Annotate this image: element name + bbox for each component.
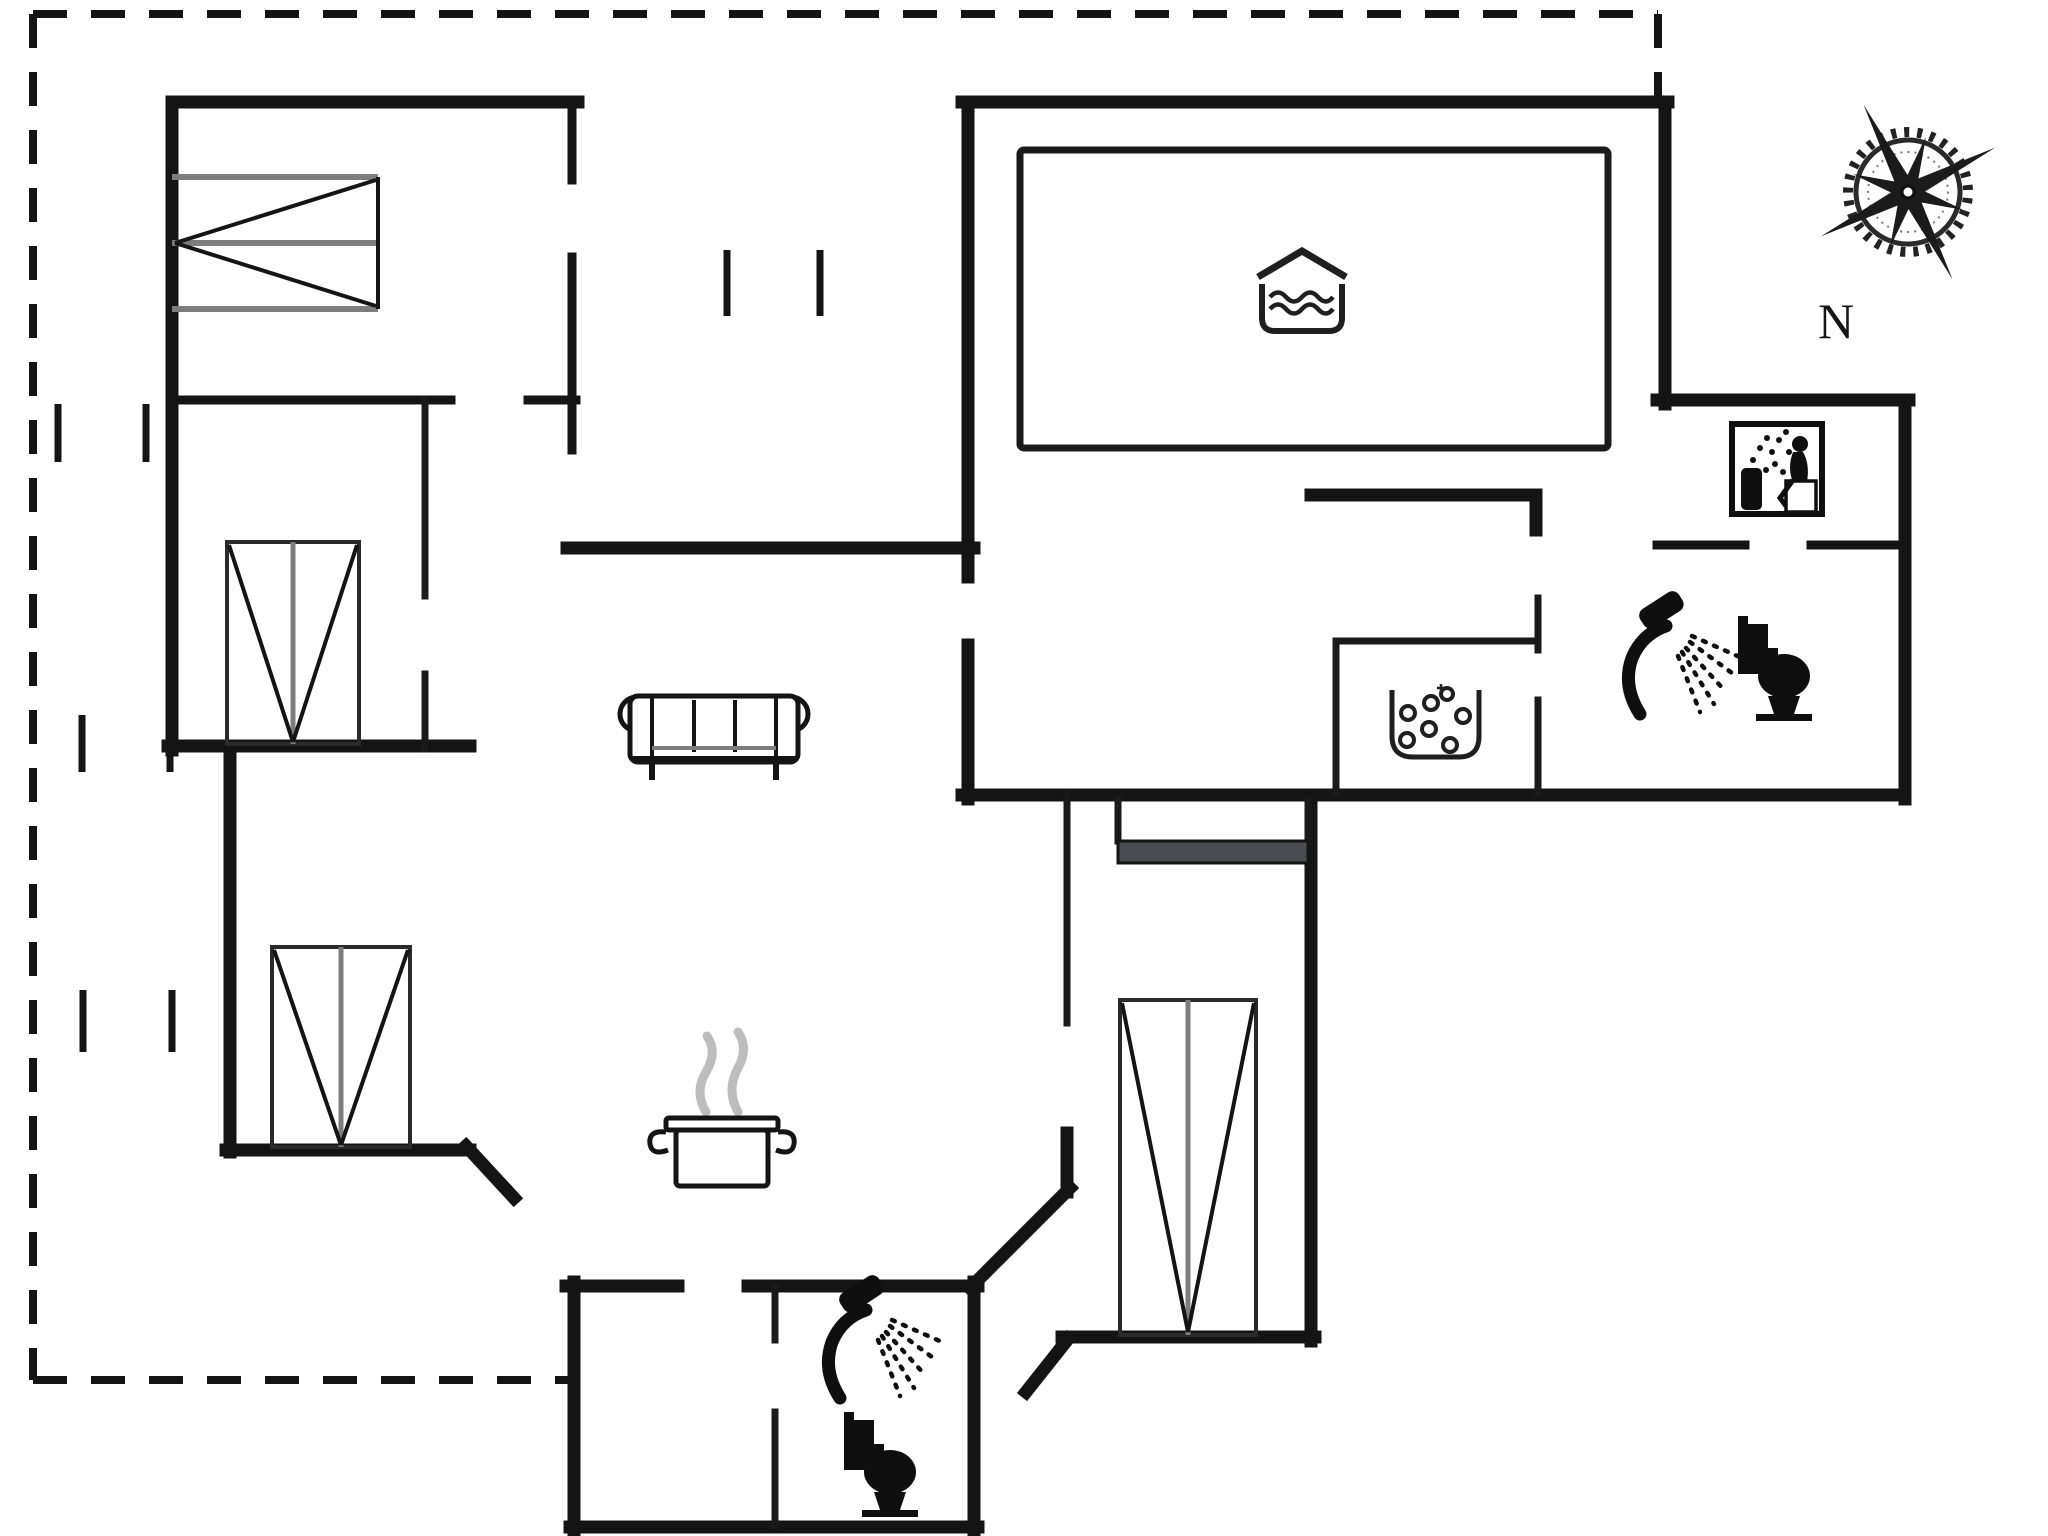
whirlpool-spa-icon [1732,424,1822,514]
pool-basin [1020,150,1608,448]
steaming-pot-icon [650,1032,794,1186]
bed-1 [172,177,378,309]
counter-bar [1118,841,1308,863]
bed-2 [227,542,359,744]
floor-plan-page: N [0,0,2048,1536]
shower-icon [1628,588,1742,714]
bathroom-annex [828,1272,942,1517]
bed-4 [1120,1000,1256,1335]
interior-walls-thin [425,400,1538,1526]
sauna-stones-icon [1392,684,1479,757]
toilet-icon [1738,616,1812,721]
bed-3 [272,947,410,1147]
bathroom-main [1628,588,1812,721]
interior-walls-medium [172,102,1903,545]
sofa [620,696,808,780]
compass-rose-icon: N [1733,17,2048,366]
exterior-walls [168,102,1909,1530]
toilet-icon [844,1412,918,1517]
indoor-pool-icon [1258,251,1346,331]
floor-plan-canvas: N [0,0,2048,1536]
compass-north-label: N [1818,293,1854,349]
